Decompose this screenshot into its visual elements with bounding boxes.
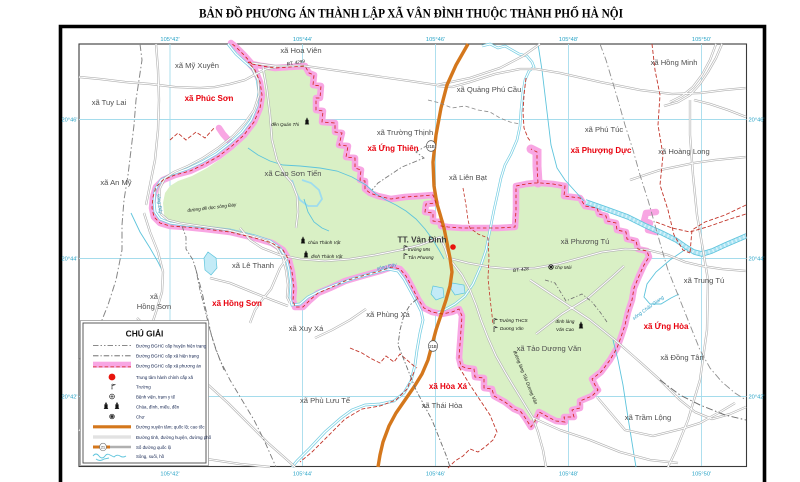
svg-text:105°46': 105°46'	[426, 472, 445, 478]
svg-text:21B: 21B	[427, 144, 435, 149]
svg-text:đền Quán Thi: đền Quán Thi	[271, 122, 300, 127]
svg-text:Số đường quốc lộ: Số đường quốc lộ	[136, 445, 172, 450]
svg-text:xã Tuy Lai: xã Tuy Lai	[92, 98, 127, 107]
svg-text:Đường ĐGHC cấp xã hiện trạng: Đường ĐGHC cấp xã hiện trạng	[136, 354, 199, 359]
svg-text:xã Mỹ Xuyên: xã Mỹ Xuyên	[175, 61, 219, 70]
svg-text:105°44': 105°44'	[293, 472, 312, 478]
svg-text:Bệnh viện, trạm y tế: Bệnh viện, trạm y tế	[136, 394, 176, 399]
svg-text:xã Trung Tú: xã Trung Tú	[684, 276, 724, 285]
svg-text:xã Quảng Phú Cầu: xã Quảng Phú Cầu	[457, 85, 522, 94]
svg-text:xã Ứng Hòa: xã Ứng Hòa	[644, 322, 689, 331]
svg-text:xã Phúc Sơn: xã Phúc Sơn	[185, 94, 234, 103]
svg-text:Sông, suối, hồ: Sông, suối, hồ	[136, 454, 165, 459]
svg-text:Đường tỉnh, đường huyện, đường: Đường tỉnh, đường huyện, đường phố	[136, 435, 212, 440]
svg-text:xã Trường Thịnh: xã Trường Thịnh	[377, 128, 433, 137]
svg-text:xã Đồng Tân: xã Đồng Tân	[660, 353, 703, 362]
svg-text:20°42': 20°42'	[61, 395, 77, 401]
svg-text:trường MN: trường MN	[408, 247, 431, 252]
svg-text:20°46': 20°46'	[749, 118, 765, 124]
svg-text:xã Phương Tú: xã Phương Tú	[561, 237, 610, 246]
svg-text:20°44': 20°44'	[61, 257, 77, 263]
svg-text:Đường ĐGHC cấp xã phương án: Đường ĐGHC cấp xã phương án	[136, 364, 202, 369]
svg-text:CHÚ GIẢI: CHÚ GIẢI	[126, 328, 164, 339]
svg-text:20°44': 20°44'	[749, 257, 765, 263]
svg-text:Trường THCS: Trường THCS	[499, 318, 529, 323]
svg-text:TT. Vân Đình: TT. Vân Đình	[397, 236, 446, 245]
svg-text:xã Thái Hòa: xã Thái Hòa	[422, 401, 464, 410]
svg-text:BẢN ĐỒ PHƯƠNG ÁN THÀNH LẬP XÃ: BẢN ĐỒ PHƯƠNG ÁN THÀNH LẬP XÃ VÂN ĐÌNH T…	[199, 6, 623, 21]
svg-text:Hồng Sơn: Hồng Sơn	[137, 302, 172, 311]
svg-text:Văn Cao: Văn Cao	[556, 327, 574, 332]
svg-text:xã Lê Thanh: xã Lê Thanh	[232, 261, 274, 270]
svg-text:105°48': 105°48'	[559, 472, 578, 478]
svg-text:xã Hoàng Long: xã Hoàng Long	[658, 147, 710, 156]
svg-text:105°42': 105°42'	[160, 472, 179, 478]
svg-text:xã: xã	[150, 292, 159, 301]
svg-text:đình làng: đình làng	[556, 319, 575, 324]
svg-text:xã Hồng Sơn: xã Hồng Sơn	[212, 299, 262, 308]
svg-text:105°48': 105°48'	[559, 37, 578, 43]
svg-text:xã Ứng Thiên: xã Ứng Thiên	[367, 144, 418, 153]
svg-text:21: 21	[101, 446, 105, 450]
svg-text:105°46': 105°46'	[426, 37, 445, 43]
svg-text:Chợ: Chợ	[136, 414, 145, 419]
svg-text:21B: 21B	[429, 344, 437, 349]
svg-text:20°46': 20°46'	[61, 118, 77, 124]
svg-text:xã Trầm Lộng: xã Trầm Lộng	[625, 413, 671, 422]
svg-text:xã An Mỹ: xã An Mỹ	[100, 178, 131, 187]
svg-text:Đường xuyên tâm; quốc lộ; cao: Đường xuyên tâm; quốc lộ; cao tốc	[136, 425, 205, 430]
svg-text:xã Phù Lưu Tế: xã Phù Lưu Tế	[300, 396, 351, 405]
svg-text:chợ Mới: chợ Mới	[555, 265, 573, 270]
svg-text:xã Tảo Dương Văn: xã Tảo Dương Văn	[517, 344, 582, 353]
svg-text:xã Phùng Xá: xã Phùng Xá	[366, 310, 410, 319]
svg-text:Đường ĐGHC cấp huyện hiện trạn: Đường ĐGHC cấp huyện hiện trạng	[136, 343, 207, 348]
svg-text:105°42': 105°42'	[160, 37, 179, 43]
svg-text:20°42': 20°42'	[749, 395, 765, 401]
svg-text:105°44': 105°44'	[293, 37, 312, 43]
svg-text:chùa Thành Vật: chùa Thành Vật	[308, 240, 341, 245]
svg-text:Trung tâm hành chính cấp xã: Trung tâm hành chính cấp xã	[136, 375, 194, 380]
svg-text:xã Xuy Xá: xã Xuy Xá	[289, 324, 324, 333]
svg-text:xã Cao Sơn Tiến: xã Cao Sơn Tiến	[265, 169, 322, 178]
svg-text:Dương Văn: Dương Văn	[500, 326, 524, 331]
svg-text:xã Phượng Dực: xã Phượng Dực	[571, 146, 632, 155]
svg-text:xã Hoa Viên: xã Hoa Viên	[280, 46, 321, 55]
svg-text:Trường: Trường	[136, 385, 151, 390]
svg-text:xã Hòa Xá: xã Hòa Xá	[429, 382, 468, 391]
svg-text:đình Thành Vật: đình Thành Vật	[311, 254, 343, 259]
svg-text:xã Phú Túc: xã Phú Túc	[585, 125, 623, 134]
svg-text:105°50': 105°50'	[692, 37, 711, 43]
svg-text:Chùa, đình, miếu, đền: Chùa, đình, miếu, đền	[136, 404, 180, 409]
svg-text:xã Hồng Minh: xã Hồng Minh	[651, 58, 698, 67]
svg-text:Tân Phương: Tân Phương	[408, 255, 434, 260]
svg-text:xã Liên Bạt: xã Liên Bạt	[449, 173, 488, 182]
svg-text:105°50': 105°50'	[692, 472, 711, 478]
